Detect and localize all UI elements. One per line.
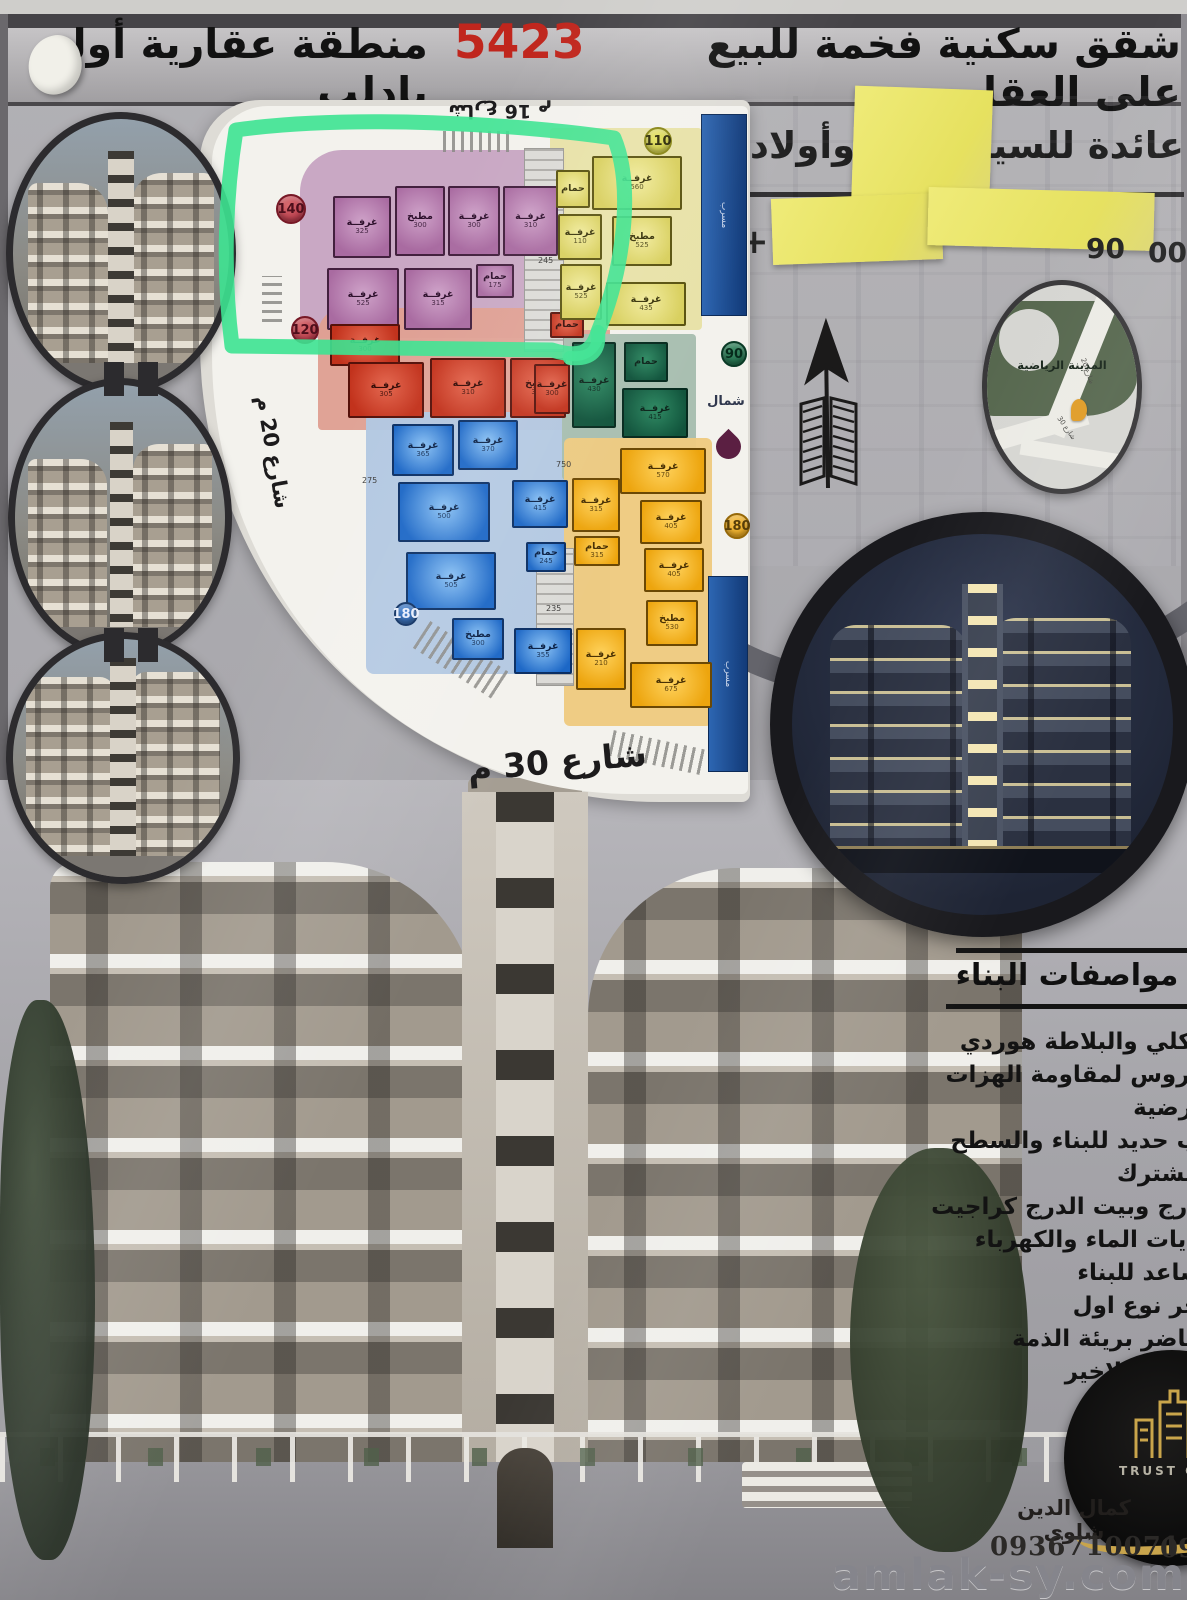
night-wing-left — [830, 625, 967, 846]
map-area-label: المدينة الرياضية — [1002, 358, 1122, 372]
dimension-note: 275 — [362, 476, 377, 485]
room-dim: 300 — [545, 390, 558, 397]
spec-item: الدرج وبيت الدرج كراجيت — [857, 1191, 1187, 1224]
map-road — [1019, 439, 1140, 474]
real-estate-poster: شقق سكنية فخمة للبيع على العقار 5423 منط… — [0, 0, 1187, 1600]
spec-item: حجر نوع اول — [857, 1290, 1187, 1323]
spec-item: امايات الماء والكهرباء — [857, 1224, 1187, 1257]
room-dim: 500 — [437, 513, 450, 520]
room-dim: 530 — [665, 624, 678, 631]
room-dim: 405 — [667, 571, 680, 578]
room-dim: 405 — [664, 523, 677, 530]
area-badge-180-blue: 180 — [394, 602, 418, 626]
specs-title: مواصفات البناء — [948, 958, 1186, 993]
duct-label: مسرب — [723, 661, 733, 687]
plan-room: غرفــة 570 — [620, 448, 706, 494]
room-dim: 315 — [590, 552, 603, 559]
plan-room: غرفــة 370 — [458, 420, 518, 470]
room-dim: 505 — [444, 582, 457, 589]
spec-item: مصاعد للبناء — [857, 1257, 1187, 1290]
specs-list: هيكلي والبلاطة هورديمدروس لمقاومة الهزات… — [857, 1026, 1187, 1389]
room-dim: 570 — [656, 472, 669, 479]
specs-rule-top — [956, 948, 1187, 953]
night-building-render-circle — [770, 512, 1187, 937]
dimension-note: 235 — [546, 604, 561, 613]
plan-room: غرفــة 355 — [514, 628, 572, 674]
room-dim: 310 — [461, 389, 474, 396]
trust-company-text: TRUST COM — [1119, 1464, 1187, 1478]
room-dim: 355 — [536, 652, 549, 659]
spec-item: محاضر بريئة الذمة — [857, 1323, 1187, 1356]
spec-item: هيكلي والبلاطة هوردي — [857, 1026, 1187, 1059]
dimension-note: 750 — [556, 460, 571, 469]
circle-connector — [138, 362, 158, 396]
drop-icon — [711, 429, 746, 464]
room-dim: 365 — [416, 451, 429, 458]
circle-connector — [138, 628, 158, 662]
night-ground — [822, 846, 1142, 873]
plan-room: غرفــة 365 — [392, 424, 454, 476]
watermark: amlak-sy.com — [832, 1550, 1186, 1600]
room-dim: 675 — [664, 686, 677, 693]
plan-room: مطبخ 530 — [646, 600, 698, 646]
room-dim: 300 — [471, 640, 484, 647]
plan-room: غرفــة 405 — [640, 500, 702, 544]
room-dim: 245 — [539, 558, 552, 565]
duct-bar-bottom: مسرب — [708, 576, 748, 772]
night-tower — [962, 584, 1004, 851]
specs-rule-bottom — [946, 1004, 1187, 1009]
sticky-note — [771, 193, 943, 265]
plan-room: غرفــة 415 — [512, 480, 568, 528]
plan-room: غرفــة 415 — [622, 388, 688, 438]
area-badge-180-amber: 180 — [724, 513, 750, 539]
plan-room: حمام 245 — [526, 542, 566, 572]
street-label-left: شارع 20 م — [250, 386, 296, 518]
night-wing-right — [990, 618, 1131, 847]
location-map-circle: المدينة الرياضية شارع 20 شارع 30 — [982, 280, 1142, 494]
phone-fragment-right: 009 — [1148, 236, 1187, 269]
room-dim: 305 — [379, 391, 392, 398]
plan-room: مطبخ 300 — [452, 618, 504, 660]
spec-item: مدروس لمقاومة الهزات الارضية — [857, 1059, 1187, 1125]
circle-connector — [104, 362, 124, 396]
plan-room: غرفــة 210 — [576, 628, 626, 690]
room-dim: 370 — [481, 446, 494, 453]
plan-room: غرفــة 505 — [406, 552, 496, 610]
green-marker-highlight — [200, 100, 760, 390]
circle-connector — [104, 628, 124, 662]
room-dim: 315 — [589, 506, 602, 513]
plan-room: حمام 315 — [574, 536, 620, 566]
room-dim: 415 — [648, 414, 661, 421]
plan-room: غرفــة 500 — [398, 482, 490, 542]
street-label-bottom: شارع 30 م — [411, 729, 703, 793]
plan-room: غرفــة 675 — [630, 662, 712, 708]
room-dim: 415 — [533, 505, 546, 512]
plan-room: غرفــة 405 — [644, 548, 704, 592]
north-label: شمال — [704, 394, 748, 409]
room-dim: 210 — [594, 660, 607, 667]
phone-fragment-mid: 90 — [1086, 232, 1125, 265]
gold-buildings-icon — [1129, 1384, 1187, 1460]
plan-room: غرفــة 315 — [572, 478, 620, 532]
spec-item: باب حديد للبناء والسطح المشترك — [857, 1125, 1187, 1191]
compass-north-arrow — [772, 316, 884, 498]
